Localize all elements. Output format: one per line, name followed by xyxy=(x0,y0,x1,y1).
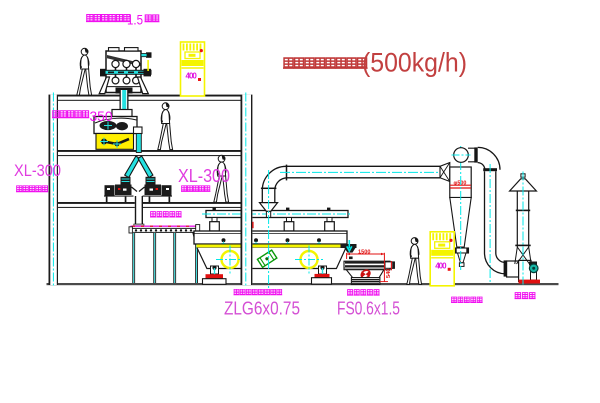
svg-text:1.5: 1.5 xyxy=(127,12,143,28)
svg-text:(500kg/h): (500kg/h) xyxy=(362,48,467,78)
svg-text:XL-300: XL-300 xyxy=(178,165,230,186)
svg-text:1500: 1500 xyxy=(358,249,370,255)
svg-text:XL-300: XL-300 xyxy=(14,162,61,180)
svg-text:φ500: φ500 xyxy=(454,181,467,187)
svg-text:ZLG6x0.75: ZLG6x0.75 xyxy=(224,298,300,319)
svg-text:350: 350 xyxy=(90,109,113,124)
svg-text:540: 540 xyxy=(386,269,392,278)
svg-text:FS0.6x1.5: FS0.6x1.5 xyxy=(337,298,400,319)
